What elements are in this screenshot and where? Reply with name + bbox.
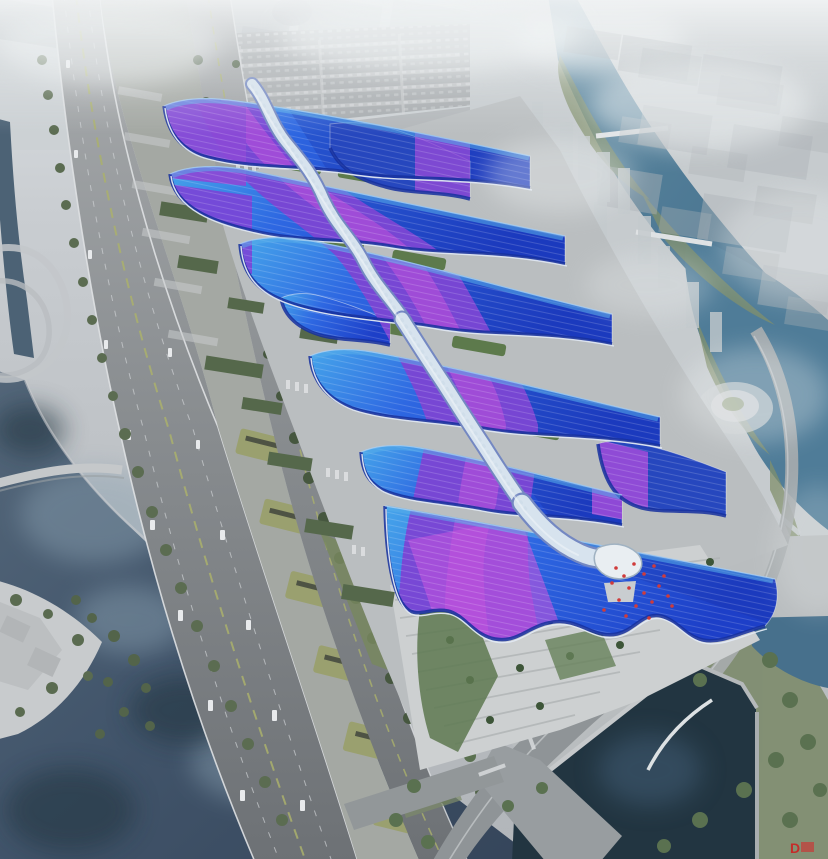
svg-text:D: D — [790, 840, 800, 856]
